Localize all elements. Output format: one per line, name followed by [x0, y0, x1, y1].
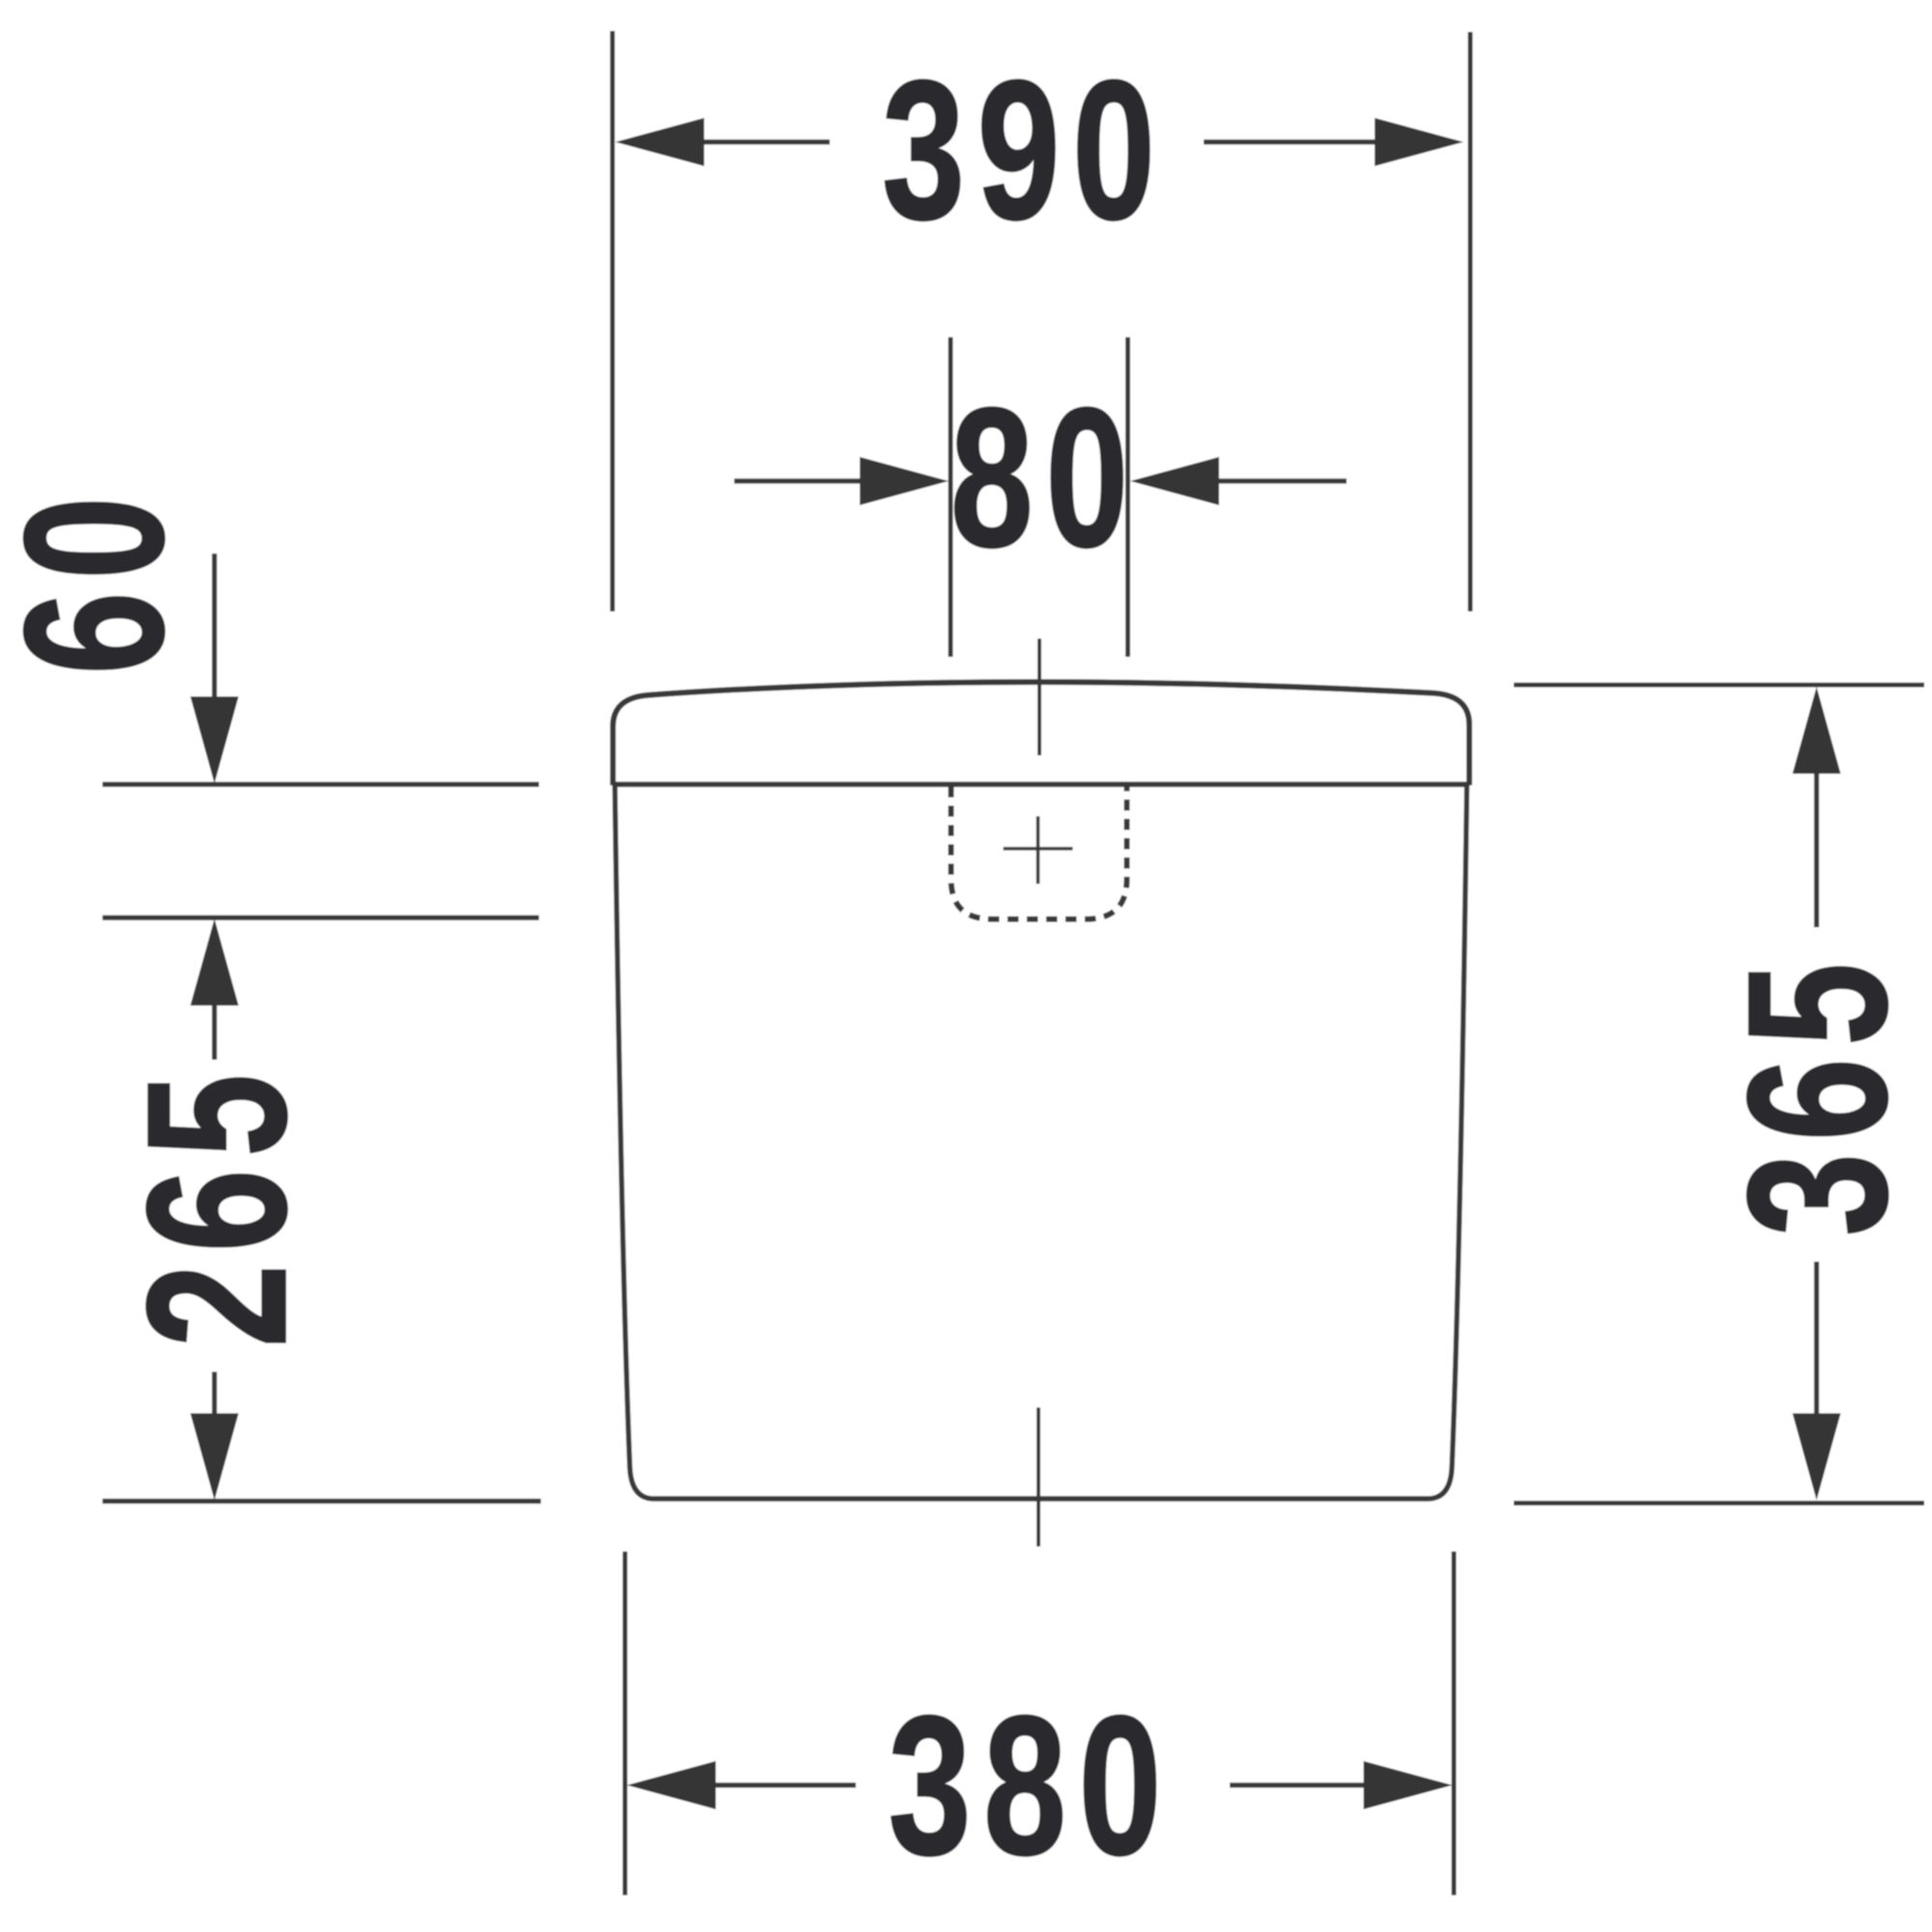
svg-text:80: 80: [951, 368, 1141, 588]
svg-text:365: 365: [1708, 951, 1928, 1236]
svg-text:60: 60: [0, 484, 205, 674]
svg-text:390: 390: [882, 41, 1168, 261]
svg-text:380: 380: [888, 1676, 1174, 1896]
svg-text:265: 265: [107, 1062, 327, 1348]
